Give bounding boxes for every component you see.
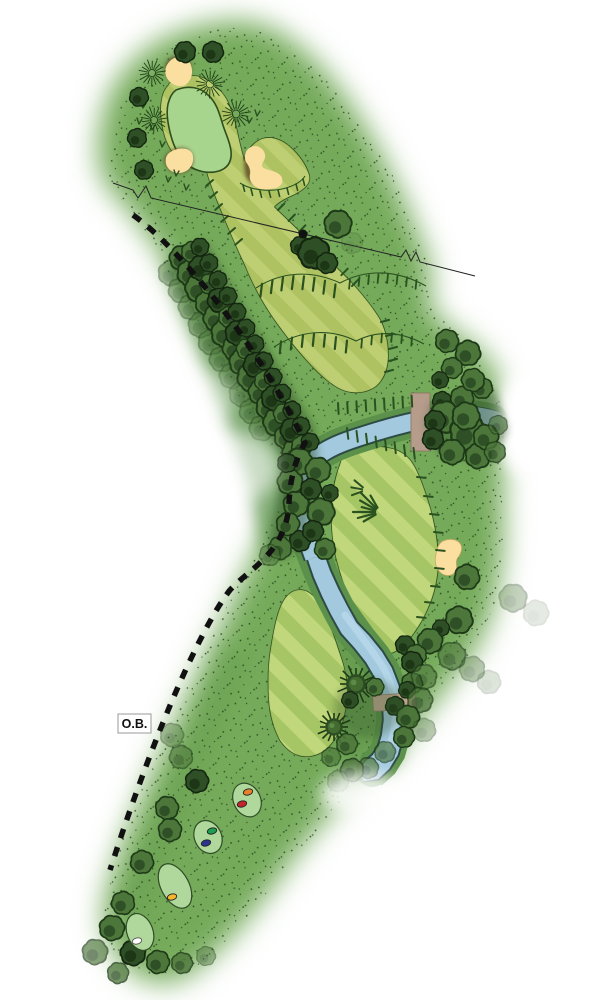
svg-text:O.B.: O.B. (122, 717, 148, 731)
